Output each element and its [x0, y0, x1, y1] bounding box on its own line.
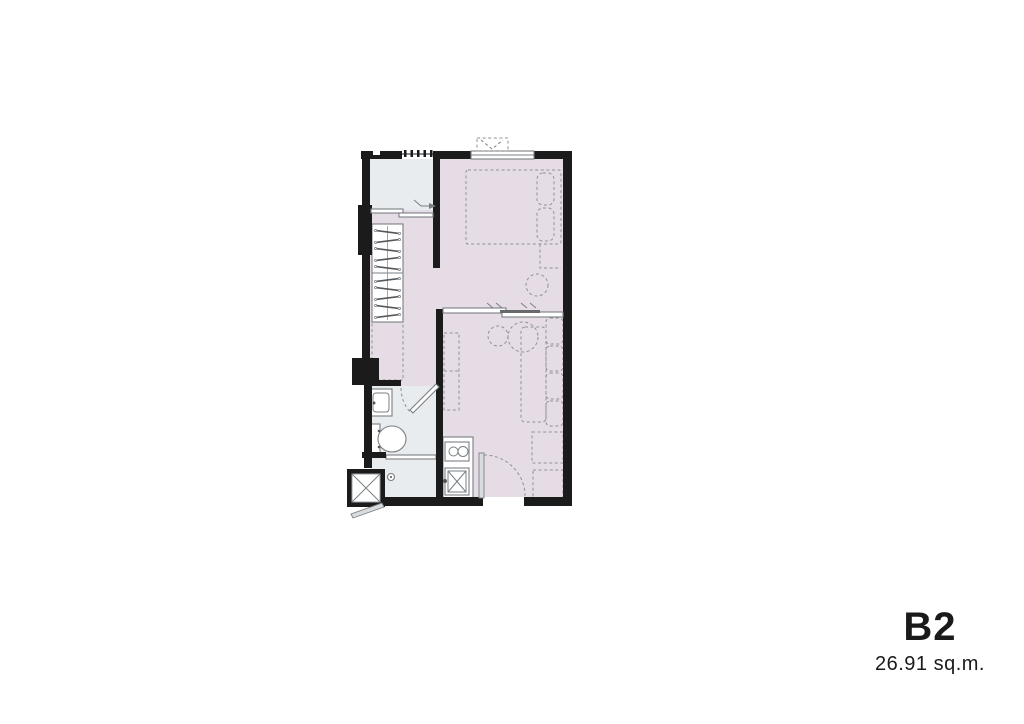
shower-partition [386, 455, 436, 459]
balcony [370, 159, 433, 210]
ac-chevron [481, 140, 503, 149]
unit-label: B2 26.91 sq.m. [830, 608, 1024, 675]
wall-bathroom-top [364, 380, 401, 386]
partition-panel [443, 308, 506, 313]
shower-stall [347, 469, 385, 518]
unit-code: B2 [830, 608, 1024, 646]
basin-faucet [373, 402, 376, 405]
wardrobe [372, 224, 403, 322]
wall-bathroom-living [436, 309, 443, 497]
wall-top-mid [433, 151, 471, 159]
partition-overlap [500, 310, 540, 313]
wall-left-mid [362, 205, 370, 360]
knob-dot [390, 476, 392, 478]
bedroom [433, 159, 563, 309]
toilet-bowl [378, 426, 406, 452]
wall-joint-notch [373, 151, 380, 155]
slider-panel [371, 209, 403, 213]
wall-left-upper [362, 151, 370, 205]
unit-area: 26.91 sq.m. [830, 653, 1024, 675]
wall-bottom-left [383, 497, 483, 506]
sink-faucet [443, 479, 447, 483]
wall-shower-top [362, 452, 386, 458]
wall-bedroom-corridor [433, 159, 440, 268]
wall-bottom-right [524, 497, 572, 506]
wall-right [563, 151, 572, 506]
kitchen [443, 437, 473, 500]
slider-panel [399, 213, 433, 217]
entrance-door-leaf [479, 453, 484, 498]
